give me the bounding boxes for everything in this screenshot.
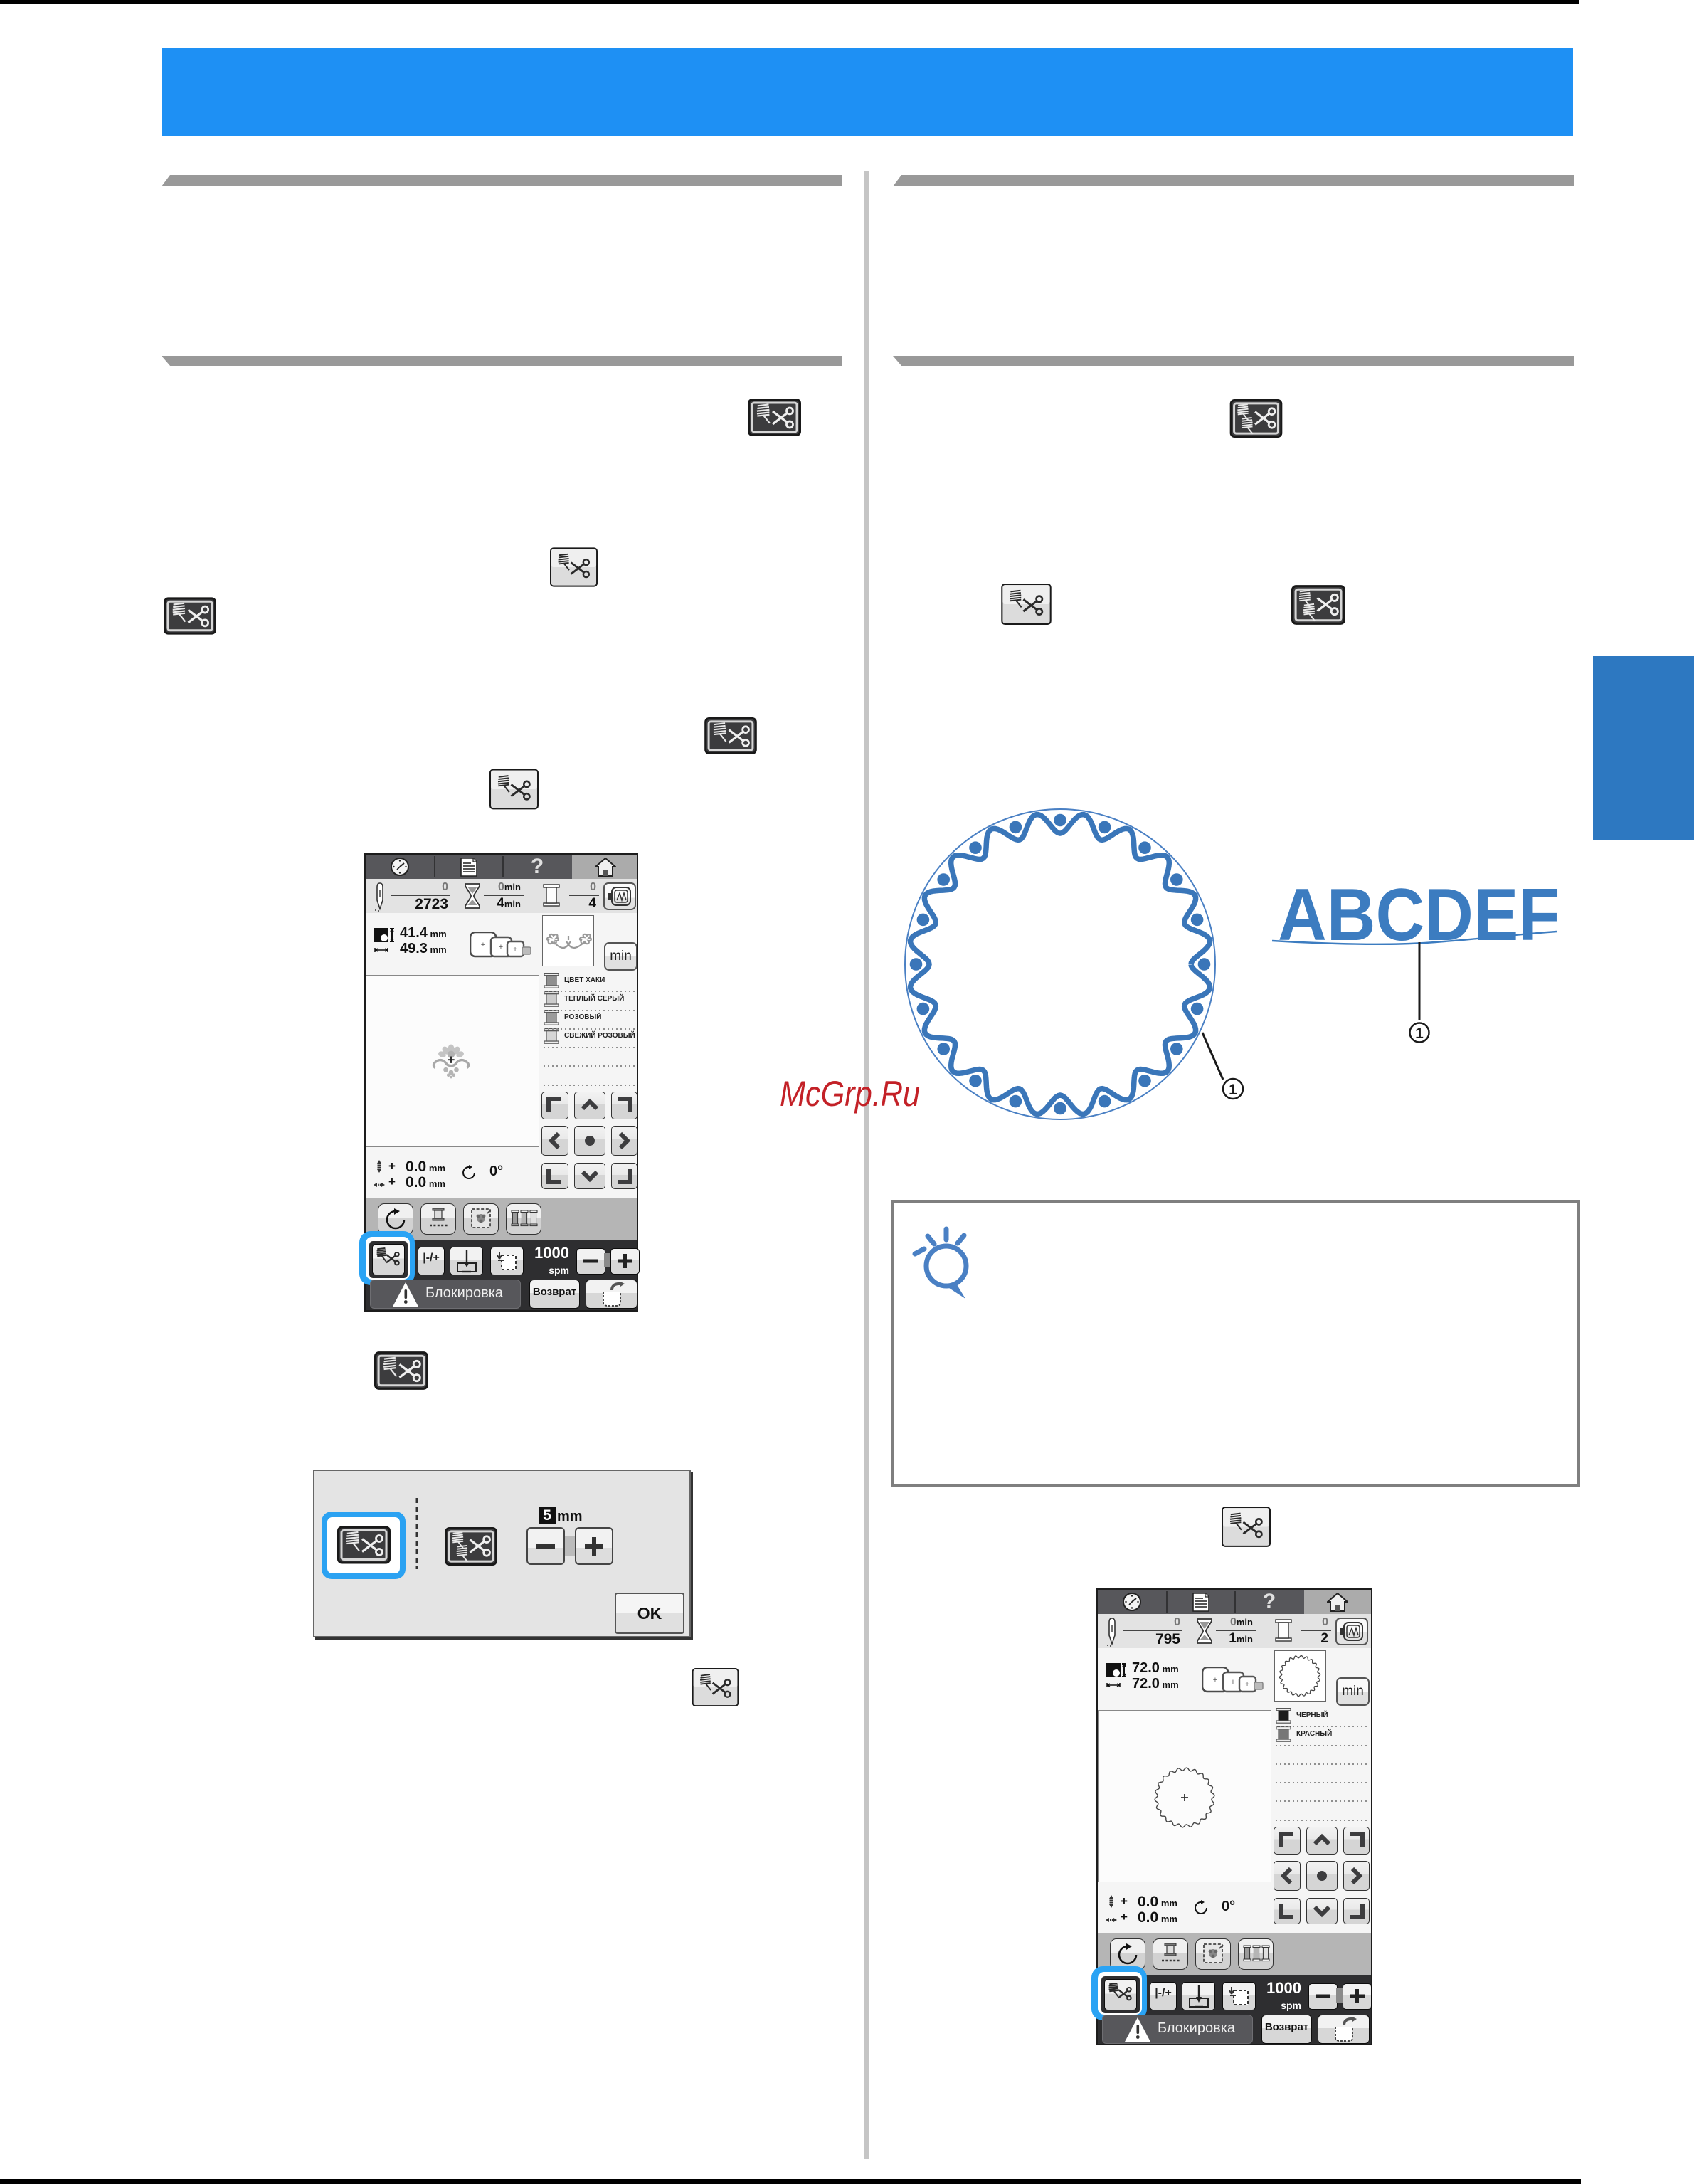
svg-text:+: +: [1231, 1678, 1235, 1687]
svg-text:+: +: [513, 946, 517, 954]
svg-text:1: 1: [1415, 1025, 1424, 1042]
svg-text:+: +: [481, 941, 485, 949]
svg-text:1: 1: [1229, 1082, 1237, 1098]
svg-text:+: +: [1245, 1681, 1249, 1689]
svg-text:+: +: [499, 943, 503, 951]
svg-text:+: +: [1213, 1676, 1217, 1684]
